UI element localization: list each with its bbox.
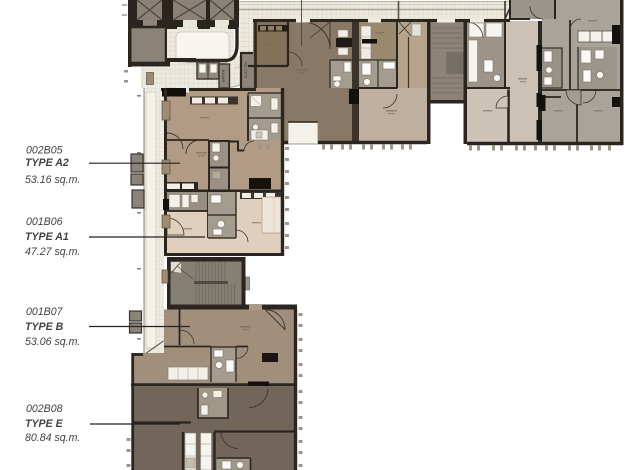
svg-text:001B06: 001B06 (26, 216, 63, 228)
svg-text:002B08: 002B08 (26, 403, 63, 415)
svg-text:002B05: 002B05 (26, 145, 63, 157)
svg-text:TYPE B: TYPE B (25, 321, 64, 333)
svg-text:53.16 sq.m.: 53.16 sq.m. (25, 174, 80, 186)
svg-text:001B07: 001B07 (26, 306, 64, 318)
svg-text:47.27 sq.m.: 47.27 sq.m. (25, 246, 80, 258)
svg-text:TYPE A1: TYPE A1 (25, 231, 69, 243)
svg-text:53.06 sq.m.: 53.06 sq.m. (25, 336, 80, 348)
svg-text:TYPE E: TYPE E (25, 418, 64, 430)
svg-text:GAR RM: GAR RM (222, 69, 226, 82)
svg-text:80.84 sq.m.: 80.84 sq.m. (25, 432, 80, 444)
svg-text:ELEC RM: ELEC RM (244, 62, 248, 78)
svg-text:TYPE A2: TYPE A2 (25, 157, 69, 169)
